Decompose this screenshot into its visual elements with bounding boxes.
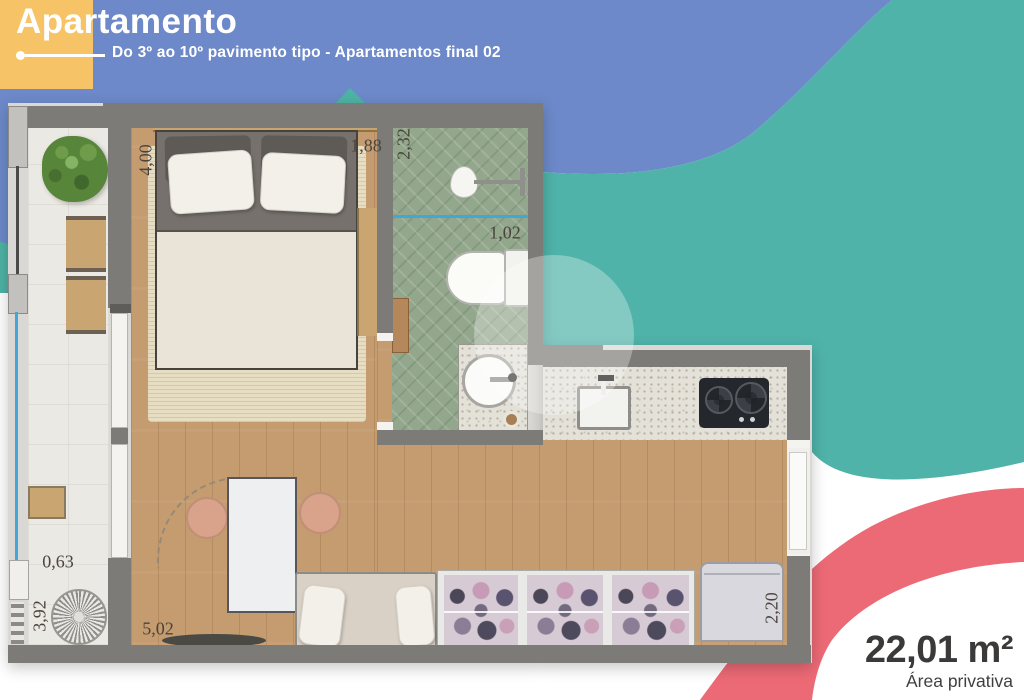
railing-glass-lower [15, 312, 18, 562]
balcony-slider-post [111, 428, 128, 444]
dim-balcony-length: 3,92 [30, 600, 51, 632]
wall-balcony-divider-lower [108, 558, 131, 648]
dim-bathroom-width: 1,02 [489, 223, 521, 244]
sofa-pillow-right [394, 585, 435, 648]
shower-glass-partition [392, 215, 528, 218]
chair-right [299, 492, 341, 534]
railing-post-bottom [9, 560, 29, 600]
divider-rail-bar [110, 304, 131, 313]
burner-left [705, 386, 733, 414]
dining-table [227, 477, 297, 613]
pillow-left [167, 149, 255, 215]
soap-dish-icon [503, 411, 520, 428]
area-value: 22,01 m² [865, 631, 1013, 669]
area-label: Área privativa [865, 671, 1013, 692]
wall-top [103, 103, 543, 128]
dim-balcony-width: 0,63 [42, 552, 74, 573]
balcony-bench-1 [66, 216, 106, 272]
cabinet-top-line [704, 573, 780, 575]
burner-right [735, 382, 767, 414]
wardrobe-section-3 [612, 575, 689, 646]
wardrobe-section-2 [527, 575, 603, 646]
bath-doorway-floor [377, 341, 393, 422]
watermark-circle [474, 255, 634, 415]
wall-balcony-divider-upper [108, 108, 131, 308]
double-bed [155, 130, 358, 370]
wall-balcony-top [28, 106, 115, 128]
floor-plan-poster: Apartamento Do 3º ao 10º pavimento tipo … [0, 0, 1024, 700]
plant-icon [42, 136, 108, 202]
chair-left [186, 497, 228, 539]
wall-bottom [8, 645, 811, 663]
balcony-bench-2 [66, 276, 106, 334]
pillow-right [260, 152, 347, 214]
dim-bed-width: 1,88 [350, 136, 382, 157]
railing-vent-strip [11, 602, 24, 644]
bath-door-jamb-bottom [377, 422, 393, 430]
railing-post-top [8, 106, 28, 168]
cooktop-knob-1 [739, 417, 744, 422]
sofa [295, 572, 437, 650]
bath-door-jamb-top [377, 333, 393, 341]
wall-under-bathroom [377, 430, 543, 445]
dim-bedroom-length: 4,00 [136, 144, 157, 176]
entry-jamb-top [787, 440, 810, 448]
wall-right-upper [787, 350, 810, 448]
wardrobe-section-1 [444, 575, 518, 646]
entry-door-leaf [789, 452, 807, 550]
dim-living-length: 5,02 [142, 619, 174, 640]
cooktop-icon [699, 378, 769, 428]
bed-duvet-fold [157, 230, 356, 232]
shower-arm [474, 180, 524, 184]
dim-bathroom-length: 2,32 [394, 128, 415, 160]
shower-bracket [520, 168, 525, 196]
bedside-shelf [357, 208, 378, 336]
floor-plan: 4,00 1,88 2,32 1,02 0,63 3,92 5,02 2,20 [0, 0, 1024, 700]
balcony-side-table [28, 486, 66, 519]
bathroom-door-leaf [392, 298, 409, 353]
railing-glass-upper [16, 166, 19, 276]
balcony-slider-panel-2 [111, 444, 128, 558]
railing-post-mid [8, 274, 28, 314]
dim-entry-width: 2,20 [762, 592, 783, 624]
sofa-pillow-left [298, 584, 347, 649]
area-badge: 22,01 m² Área privativa [865, 631, 1013, 692]
round-rug-icon [51, 589, 107, 645]
cooktop-knob-2 [750, 417, 755, 422]
wardrobe [437, 570, 695, 650]
balcony-slider-panel-1 [111, 313, 128, 428]
